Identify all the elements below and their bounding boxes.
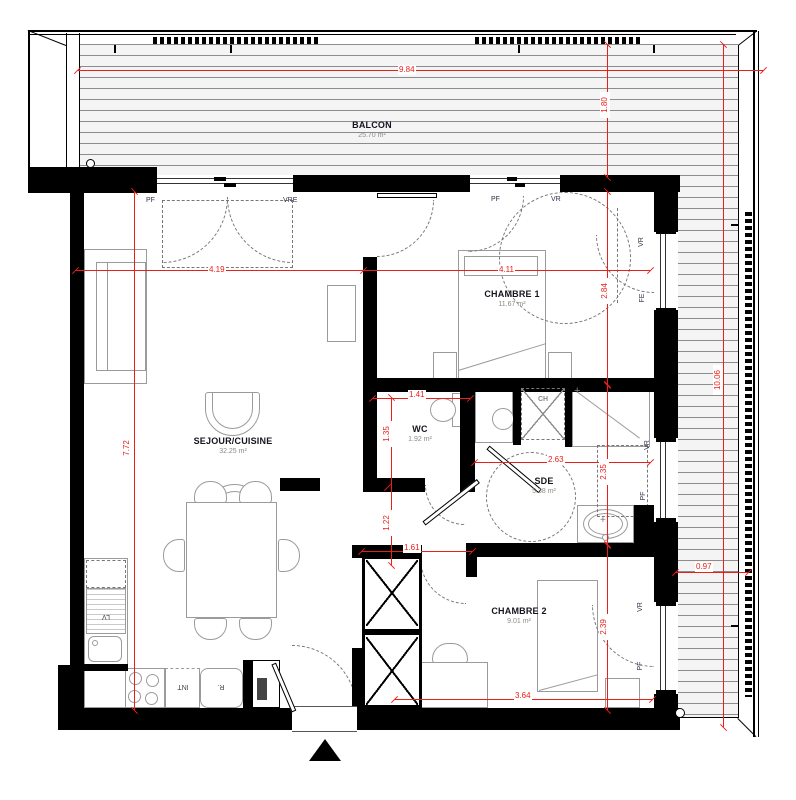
dim-line-total-width — [78, 70, 763, 71]
balcony-deck-right — [678, 175, 738, 718]
window-label-vr-w2: VR — [551, 196, 561, 204]
deck-joint-tick — [653, 45, 655, 53]
dining-chair — [239, 618, 272, 640]
deck-edge-bottom — [678, 717, 739, 718]
dining-chair — [239, 481, 272, 503]
room-label-chambre2: CHAMBRE 2 9.01 m² — [459, 606, 579, 626]
dining-table — [186, 502, 277, 618]
dim-line-right-total — [723, 45, 724, 727]
room-name: BALCON — [332, 120, 412, 131]
deck-edge-right — [738, 45, 739, 718]
deck-joint-tick — [114, 45, 116, 53]
closet-cross-top — [366, 560, 418, 626]
room-name: SDE — [504, 476, 584, 487]
wc-toilet-bowl — [430, 398, 456, 422]
wall-top-mid — [295, 175, 468, 192]
burner-icon — [146, 674, 159, 687]
window-label-vr-fe: VR — [638, 232, 646, 252]
floor-plan: CH + + LV INT R. — [0, 0, 796, 800]
tall-cabinet-inner — [257, 678, 267, 700]
dining-chair — [194, 481, 227, 503]
room-label-wc: WC 1.92 m² — [380, 424, 460, 444]
wall-kitchen-stub — [280, 478, 320, 491]
room-area: 9.01 m² — [459, 617, 579, 626]
dim-hall-w: 1.61 — [403, 543, 421, 553]
room-label-sejour: SEJOUR/CUISINE 32.25 m² — [163, 436, 303, 456]
deck-joint-tick — [731, 224, 739, 226]
dim-line-sejour-h — [134, 192, 135, 710]
washing-column-icon — [492, 408, 514, 430]
dim-sde-h: 2.35 — [599, 459, 609, 485]
nightstand — [605, 678, 640, 708]
mitre-top-left — [28, 30, 67, 46]
dim-ch2-h: 2.39 — [599, 614, 609, 640]
window-ch1-balcony — [466, 175, 564, 192]
dining-chair — [194, 618, 227, 640]
balcony-edge-left-1 — [66, 33, 67, 167]
drain-icon — [86, 159, 95, 168]
wall-right-4 — [654, 694, 678, 722]
wall-bottom-left — [58, 708, 292, 730]
window-label-vr-ch2: VR — [637, 597, 645, 617]
room-name: CHAMBRE 1 — [452, 289, 572, 300]
dishwasher — [86, 588, 126, 634]
dim-ch1-h: 2.84 — [600, 278, 610, 304]
sofa-seat — [96, 262, 146, 371]
fridge-label: R. — [210, 682, 232, 690]
outer-line-top — [28, 30, 757, 32]
room-name: SEJOUR/CUISINE — [163, 436, 303, 447]
wall-wc-left — [363, 392, 377, 492]
wall-sde-south — [477, 543, 658, 557]
sofa-back-line — [107, 263, 108, 370]
side-table — [327, 285, 356, 342]
outer-line-right-1 — [753, 31, 755, 737]
window-label-pf-ch2: PF — [637, 656, 645, 676]
room-name: CHAMBRE 2 — [459, 606, 579, 617]
oven-label: INT — [170, 682, 196, 690]
desk-chair — [432, 643, 468, 663]
door-leaf-ch1 — [377, 193, 437, 198]
window-label-pf-w1: PF — [146, 197, 155, 205]
dim-total-width: 9.84 — [398, 65, 416, 75]
room-area: 11.67 m² — [452, 300, 572, 309]
wall-right-1 — [654, 175, 678, 232]
entry-threshold — [292, 706, 357, 732]
closet-divider — [362, 629, 422, 635]
wall-divider-2 — [565, 383, 572, 447]
balcony-deck-top — [80, 44, 738, 175]
kitchen-faucet-icon — [92, 640, 98, 646]
deck-joint-tick — [230, 45, 232, 53]
entry-marker-icon — [309, 739, 341, 761]
bed-chambre2 — [537, 580, 598, 692]
window-sde-right — [656, 438, 676, 522]
window-fe-chord — [617, 208, 618, 303]
wall-top-left — [28, 167, 157, 193]
door-swing-ch2 — [420, 558, 466, 604]
dim-ch2-w: 3.64 — [514, 691, 532, 701]
dim-sejour-w: 4.19 — [208, 265, 226, 275]
wall-right-3 — [654, 522, 678, 602]
sde-faucet-icon: + — [600, 517, 606, 525]
window-label-pf-w2: PF — [491, 196, 500, 204]
dining-chair — [278, 539, 300, 572]
window-ch1-right-fe — [656, 230, 676, 312]
room-label-chambre1: CHAMBRE 1 11.67 m² — [452, 289, 572, 309]
wall-sejour-ch1 — [363, 257, 377, 392]
wall-entry-stub-left — [243, 660, 252, 708]
dim-sde-w: 2.63 — [547, 455, 565, 465]
room-area: 25.70 m² — [332, 131, 412, 140]
dim-balcony-side-w: 0.97 — [695, 562, 713, 572]
dim-ch1-w: 4.11 — [498, 265, 515, 275]
dishwasher-label: LV — [96, 612, 116, 620]
wall-right-2 — [654, 310, 678, 438]
room-area: 32.25 m² — [163, 447, 303, 456]
kitchen-divider — [84, 664, 128, 671]
wall-wc-south — [363, 478, 425, 492]
door-swing-sde-circle — [486, 452, 576, 542]
drain-icon — [675, 708, 685, 718]
dim-wc-h: 1.35 — [382, 421, 392, 447]
wall-left — [70, 175, 84, 672]
dim-wc-w: 1.41 — [408, 390, 426, 400]
room-label-sde: SDE 5.38 m² — [504, 476, 584, 496]
dim-hall-h: 1.22 — [382, 510, 392, 536]
balcony-railing-right — [745, 212, 752, 697]
balcony-edge-left-2 — [79, 33, 80, 167]
outer-line-right-2 — [758, 31, 759, 737]
shower-head-icon: + — [574, 387, 580, 395]
room-area: 5.38 m² — [504, 487, 584, 496]
water-heater-label: CH — [530, 396, 556, 404]
dining-chair — [163, 539, 185, 572]
dim-sejour-h: 7.72 — [122, 435, 132, 461]
window-label-vr-sde: VR — [644, 435, 652, 455]
room-area: 1.92 m² — [380, 435, 460, 444]
closet-cross-bottom — [366, 637, 418, 705]
outer-line-top-inner — [28, 34, 736, 35]
window-ch2-right — [656, 602, 676, 694]
wall-sde-sink-right — [634, 505, 654, 557]
window-label-pf-sde: PF — [640, 486, 648, 506]
wall-entry-stub-right — [352, 648, 362, 708]
kitchen-upper-cabinet — [86, 560, 126, 588]
window-sejour-balcony — [153, 175, 297, 192]
door-swing-ch1 — [377, 200, 434, 257]
dim-right-total: 10.06 — [713, 365, 723, 395]
wall-bottom-right — [357, 708, 680, 730]
room-name: WC — [380, 424, 460, 435]
deck-joint-tick — [518, 45, 520, 53]
room-label-balcon: BALCON 25.70 m² — [332, 120, 412, 140]
dim-line-balcony-side-w — [676, 572, 748, 573]
wall-divider-1 — [513, 385, 521, 445]
dim-balcony-depth: 1.80 — [600, 92, 610, 118]
window-label-fe: FE — [639, 288, 647, 308]
burner-icon — [145, 692, 158, 705]
deck-joint-tick — [731, 625, 739, 627]
window-label-vre-w1: VRE — [283, 197, 297, 205]
burner-icon — [129, 672, 142, 685]
balcony-railing-top-2 — [475, 37, 640, 44]
balcony-railing-top-1 — [153, 37, 318, 44]
door-swing-entry — [292, 645, 357, 710]
